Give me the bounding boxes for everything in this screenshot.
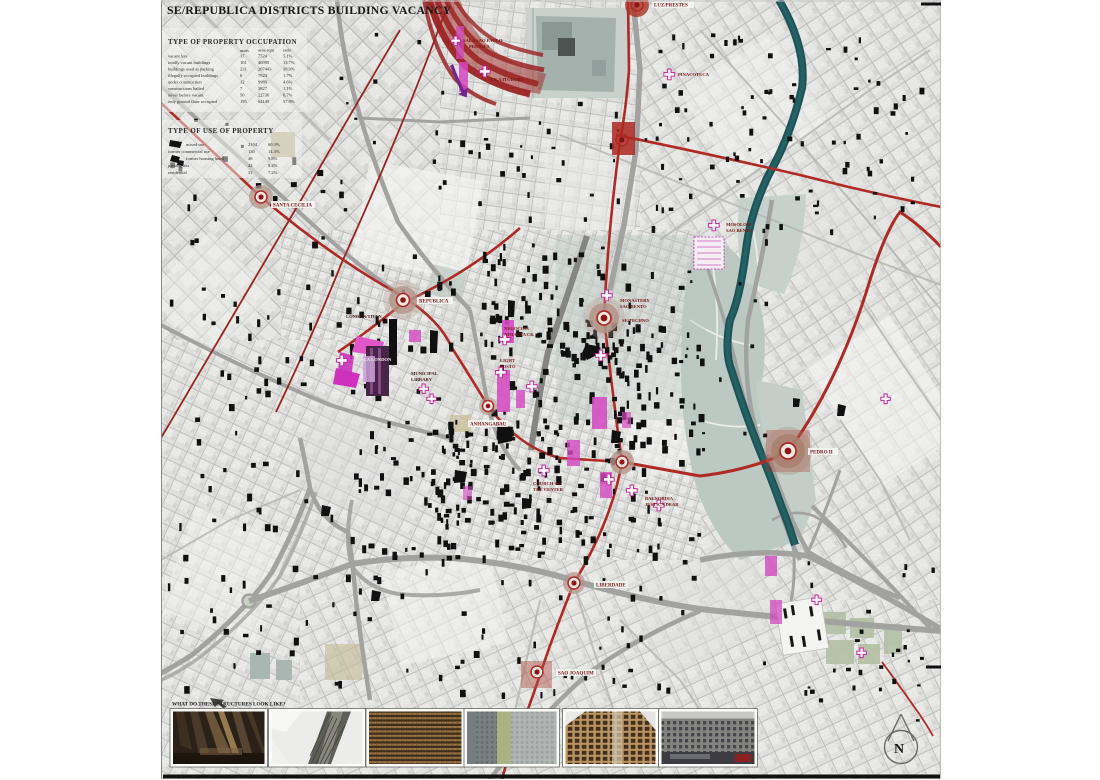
svg-text:9989: 9989	[258, 80, 268, 85]
svg-text:231: 231	[240, 67, 247, 72]
svg-text:PEDRO II: PEDRO II	[810, 451, 833, 456]
svg-text:TYPE OF PROPERTY OCCUPATION: TYPE OF PROPERTY OCCUPATION	[168, 38, 297, 46]
svg-text:LIGHT: LIGHT	[500, 358, 515, 363]
svg-text:17: 17	[240, 54, 245, 59]
svg-text:7524: 7524	[258, 54, 268, 59]
svg-text:REPUBLICA: REPUBLICA	[419, 300, 449, 305]
svg-text:4.6%: 4.6%	[283, 80, 293, 85]
svg-text:2104: 2104	[248, 142, 258, 147]
svg-text:former housing hotel: former housing hotel	[186, 156, 224, 161]
svg-text:under construction: under construction	[168, 80, 202, 85]
svg-text:1.7%: 1.7%	[283, 73, 293, 78]
svg-text:ratio: ratio	[283, 48, 292, 53]
svg-text:1.1%: 1.1%	[283, 86, 293, 91]
svg-text:CHURCH OF: CHURCH OF	[533, 481, 561, 486]
svg-text:31: 31	[248, 170, 253, 175]
svg-text:48: 48	[248, 156, 253, 161]
svg-text:parking lots: parking lots	[168, 163, 190, 168]
svg-text:64149: 64149	[258, 99, 270, 104]
svg-text:7.2%: 7.2%	[268, 170, 278, 175]
svg-text:mixed use: mixed use	[186, 142, 204, 147]
svg-text:SALA SAO PAULO: SALA SAO PAULO	[463, 38, 503, 43]
svg-text:only ground floor occupied: only ground floor occupied	[168, 99, 218, 104]
svg-text:MUNICIPAL: MUNICIPAL	[411, 371, 438, 376]
svg-text:LONDON/TITAN: LONDON/TITAN	[346, 314, 382, 319]
svg-text:THE CENTER: THE CENTER	[533, 487, 564, 492]
svg-text:LIBERDADE: LIBERDADE	[596, 584, 626, 589]
svg-text:LUZ/PRESTES: LUZ/PRESTES	[654, 4, 688, 9]
svg-text:LIBRARY: LIBRARY	[411, 377, 433, 382]
svg-text:207443: 207443	[258, 67, 272, 72]
svg-text:SALA LONDON: SALA LONDON	[358, 357, 392, 362]
svg-text:vacant lots: vacant lots	[168, 54, 188, 59]
svg-text:never before vacant: never before vacant	[168, 93, 204, 98]
svg-text:130: 130	[248, 149, 256, 154]
svg-text:8.4%: 8.4%	[268, 163, 278, 168]
svg-text:SE/TECHNO: SE/TECHNO	[622, 318, 649, 323]
svg-text:5.1%: 5.1%	[283, 54, 293, 59]
svg-text:BALNORDIA: BALNORDIA	[645, 496, 674, 501]
svg-text:38.9%: 38.9%	[283, 67, 295, 72]
svg-text:SANTA CECILIA: SANTA CECILIA	[273, 204, 312, 209]
svg-text:VILA ITORORO: VILA ITORORO	[490, 77, 525, 82]
svg-text:101: 101	[240, 60, 247, 65]
svg-text:units: units	[240, 48, 249, 53]
svg-text:13.7%: 13.7%	[283, 60, 295, 65]
svg-text:buildings used as parking: buildings used as parking	[168, 67, 215, 72]
svg-text:N: N	[894, 742, 904, 757]
svg-text:TYPE OF USE OF PROPERTY: TYPE OF USE OF PROPERTY	[168, 127, 274, 135]
svg-text:POSTO: POSTO	[500, 364, 516, 369]
svg-text:50: 50	[240, 93, 245, 98]
svg-text:7824: 7824	[258, 73, 268, 78]
svg-text:3827: 3827	[258, 86, 268, 91]
svg-text:WHAT DO THESE STRUCTURES LOOK: WHAT DO THESE STRUCTURES LOOK LIKE?	[172, 702, 286, 708]
svg-text:area sqm: area sqm	[258, 48, 275, 53]
svg-text:PRESTES: PRESTES	[469, 44, 490, 49]
svg-text:MOSOLOM: MOSOLOM	[726, 222, 752, 227]
svg-text:totally vacant buildings: totally vacant buildings	[168, 60, 210, 65]
svg-text:12: 12	[240, 80, 245, 85]
svg-text:46995: 46995	[258, 60, 270, 65]
svg-text:ANHANGABAU: ANHANGABAU	[470, 423, 507, 428]
svg-text:former commercial use: former commercial use	[168, 149, 210, 154]
svg-text:MONASTERY: MONASTERY	[620, 298, 650, 303]
svg-text:NEGOCIOS: NEGOCIOS	[504, 326, 529, 331]
svg-text:SAO BENTO: SAO BENTO	[620, 304, 647, 309]
svg-text:illegally occupied buildings: illegally occupied buildings	[168, 73, 218, 78]
svg-text:residential: residential	[168, 170, 187, 175]
svg-text:constructions halted: constructions halted	[168, 86, 205, 91]
svg-text:22736: 22736	[258, 93, 270, 98]
svg-text:57.9%: 57.9%	[283, 99, 295, 104]
svg-text:60.3%: 60.3%	[268, 142, 280, 147]
svg-text:14.3%: 14.3%	[268, 149, 280, 154]
svg-text:JUSTICA DEAR: JUSTICA DEAR	[645, 502, 679, 507]
svg-text:195: 195	[240, 99, 248, 104]
svg-text:42: 42	[248, 163, 253, 168]
svg-text:ATRACTA CK: ATRACTA CK	[504, 332, 534, 337]
svg-text:SAO BENTO: SAO BENTO	[726, 228, 753, 233]
svg-text:SE/REPUBLICA DISTRICTS BUILDIN: SE/REPUBLICA DISTRICTS BUILDING VACANCY	[167, 3, 452, 17]
svg-text:9.8%: 9.8%	[268, 156, 278, 161]
svg-text:SAO JOAQUIM: SAO JOAQUIM	[558, 672, 594, 677]
svg-text:6.7%: 6.7%	[283, 93, 293, 98]
svg-text:PINACOTECA: PINACOTECA	[678, 72, 710, 77]
